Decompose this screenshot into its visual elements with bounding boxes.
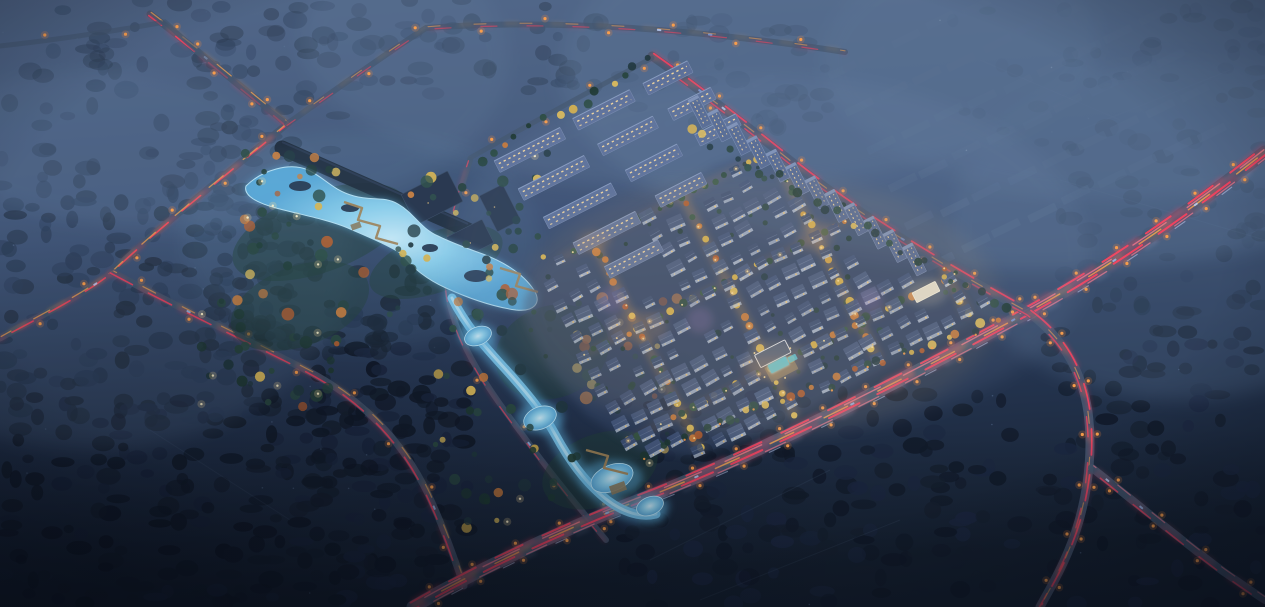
vignette-corner bbox=[0, 0, 1265, 607]
scene-canvas bbox=[0, 0, 1265, 607]
aerial-night-rendering bbox=[0, 0, 1265, 607]
